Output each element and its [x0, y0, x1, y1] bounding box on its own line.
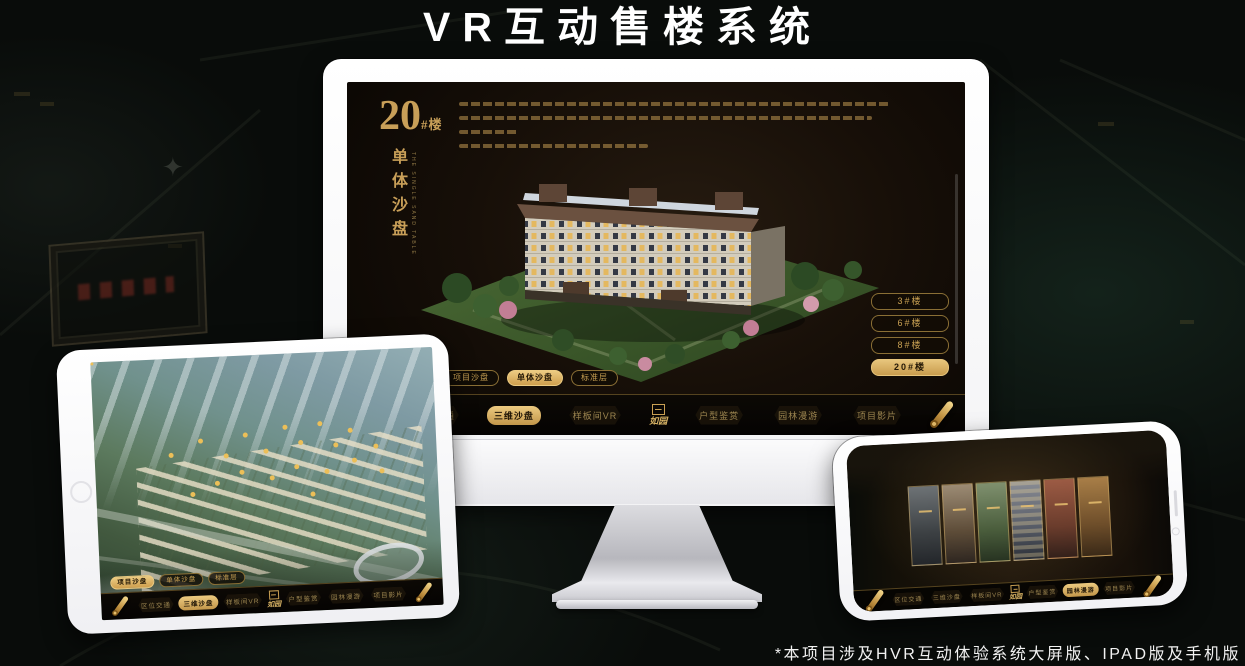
- compass-icon: ✦: [162, 152, 184, 183]
- phone-nav-item-model-room-vr[interactable]: 样板间VR: [967, 587, 1007, 602]
- monitor-stand-base: [556, 600, 758, 609]
- subtab-standard-floor[interactable]: 标准层: [571, 370, 618, 386]
- tablet-subtab-single-sandbox[interactable]: 单体沙盘: [159, 573, 204, 588]
- nav-item-floorplan[interactable]: 户型鉴赏: [692, 406, 746, 425]
- tablet-nav-item-3d-sandbox[interactable]: 三维沙盘: [178, 595, 219, 611]
- gallery-card-interior-gray[interactable]: [908, 485, 943, 567]
- floor-button-20[interactable]: 20#楼: [871, 359, 949, 376]
- gallery-card-autumn[interactable]: [1043, 478, 1078, 560]
- screen-reflection: [955, 174, 958, 364]
- block-number-heading: 20#楼: [379, 92, 443, 140]
- monitor-subtabs: 项目沙盘 单体沙盘 标准层: [443, 370, 618, 386]
- tablet-home-button[interactable]: [70, 481, 93, 504]
- gallery-card-shelves[interactable]: [1077, 476, 1112, 558]
- phone-screen: 区位交通 三维沙盘 样板间VR 如园 户型鉴赏 园林漫游 项目影片: [846, 430, 1174, 613]
- tablet-nav-item-project-film[interactable]: 项目影片: [368, 586, 409, 602]
- building-model-illustration: [413, 158, 891, 390]
- phone-bottom-nav: 区位交通 三维沙盘 样板间VR 如园 户型鉴赏 园林漫游 项目影片: [853, 574, 1174, 613]
- seal-icon: [269, 590, 279, 599]
- gallery-card-garden[interactable]: [975, 481, 1010, 563]
- tablet-scroll-icon-right[interactable]: [414, 581, 434, 603]
- seal-icon: [1010, 585, 1019, 593]
- tablet-nav-item-model-room-vr[interactable]: 样板间VR: [221, 593, 265, 609]
- phone-nav-item-3d-sandbox[interactable]: 三维沙盘: [928, 589, 965, 604]
- seal-icon: [652, 404, 665, 415]
- scene-gallery: [908, 476, 1113, 566]
- tablet-nav-item-garden-roam[interactable]: 园林漫游: [326, 588, 367, 604]
- footnote-text: *本项目涉及HVR互动体验系统大屏版、IPAD版及手机版: [775, 640, 1241, 664]
- phone-scroll-icon-left[interactable]: [864, 588, 886, 612]
- nav-item-garden-roam[interactable]: 园林漫游: [771, 406, 825, 425]
- floor-button-6[interactable]: 6#楼: [871, 315, 949, 332]
- tablet-nav-item-location-traffic[interactable]: 区位交通: [136, 597, 177, 613]
- intro-text-lines: [459, 102, 889, 158]
- tablet-scroll-icon-left[interactable]: [111, 595, 131, 617]
- tablet-subtab-standard-floor[interactable]: 标准层: [208, 571, 245, 586]
- brand-logo: 如园: [649, 404, 667, 426]
- nav-item-3d-sandbox[interactable]: 三维沙盘: [487, 406, 541, 425]
- tablet-brand-logo: 如园: [267, 590, 282, 609]
- tablet-frame: 项目沙盘 单体沙盘 标准层 区位交通 三维沙盘 样板间VR 如园 户型鉴赏 园林…: [56, 333, 460, 634]
- nav-item-model-room-vr[interactable]: 样板间VR: [566, 406, 625, 425]
- block-subtitle-vertical: 单体沙盘: [385, 148, 409, 244]
- phone-camera-dot: [1172, 527, 1180, 535]
- subtab-project-sandbox[interactable]: 项目沙盘: [443, 370, 499, 386]
- gallery-card-kitchen[interactable]: [942, 483, 977, 565]
- floor-button-8[interactable]: 8#楼: [871, 337, 949, 354]
- phone-frame: 区位交通 三维沙盘 样板间VR 如园 户型鉴赏 园林漫游 项目影片: [831, 420, 1188, 622]
- phone-nav-item-project-film[interactable]: 项目影片: [1101, 580, 1138, 595]
- background-plaque: [48, 231, 207, 347]
- subtab-single-sandbox[interactable]: 单体沙盘: [507, 370, 563, 386]
- phone-nav-item-floorplan[interactable]: 户型鉴赏: [1024, 584, 1061, 599]
- tablet-screen: 项目沙盘 单体沙盘 标准层 区位交通 三维沙盘 样板间VR 如园 户型鉴赏 园林…: [90, 347, 443, 620]
- phone-scroll-icon-right[interactable]: [1142, 574, 1164, 599]
- tablet-subtab-project-sandbox[interactable]: 项目沙盘: [110, 575, 155, 590]
- phone-nav-item-garden-roam[interactable]: 园林漫游: [1062, 582, 1099, 597]
- floor-button-3[interactable]: 3#楼: [871, 293, 949, 310]
- phone-speaker-slot: [1174, 490, 1178, 516]
- gallery-card-building[interactable]: [1009, 480, 1044, 562]
- scroll-icon-right[interactable]: [929, 400, 955, 430]
- page-title: VR互动售楼系统: [0, 0, 1245, 56]
- floor-button-group: 3#楼 6#楼 8#楼 20#楼: [871, 293, 949, 381]
- tablet-nav-item-floorplan[interactable]: 户型鉴赏: [283, 590, 324, 606]
- page: ✦ VR互动售楼系统 20#楼 单体沙盘 THE SINGLE SAND TAB…: [0, 0, 1245, 666]
- phone-nav-item-location-traffic[interactable]: 区位交通: [890, 591, 927, 606]
- block-number-suffix: #楼: [421, 117, 443, 132]
- phone-brand-logo: 如园: [1008, 585, 1022, 602]
- nav-item-project-film[interactable]: 项目影片: [850, 406, 904, 425]
